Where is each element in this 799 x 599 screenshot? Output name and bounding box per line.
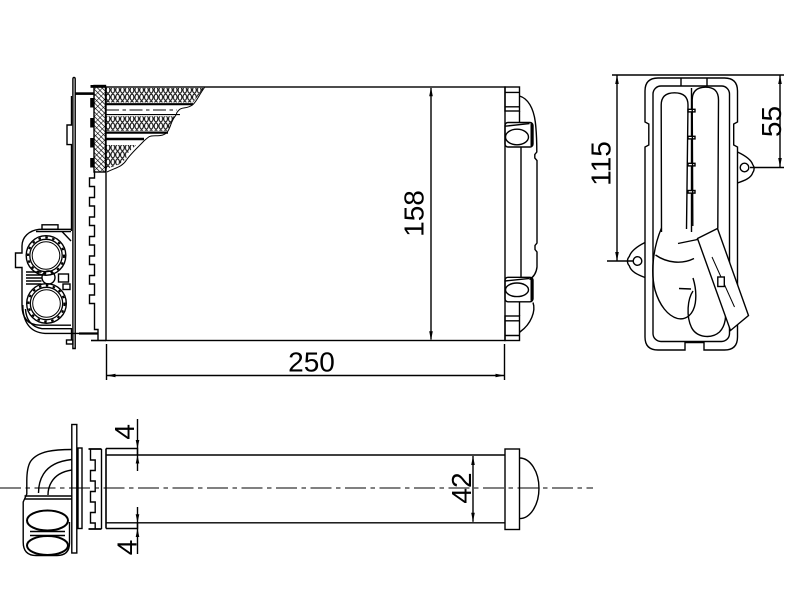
svg-text:158: 158 — [399, 190, 430, 237]
svg-text:4: 4 — [112, 540, 143, 556]
svg-text:115: 115 — [586, 141, 617, 186]
svg-text:42: 42 — [446, 472, 477, 503]
svg-text:250: 250 — [288, 347, 335, 378]
svg-text:55: 55 — [756, 106, 787, 137]
svg-text:4: 4 — [109, 424, 140, 440]
